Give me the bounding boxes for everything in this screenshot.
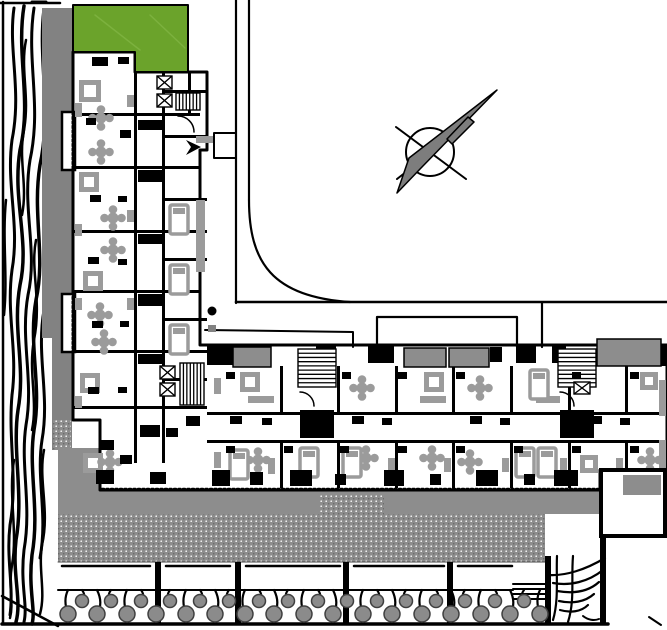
pavilion-structure <box>601 470 665 536</box>
site-plan-svg <box>0 0 667 630</box>
slope-contours-southeast <box>549 556 605 622</box>
site-plan-canvas <box>0 0 667 630</box>
north-arrow <box>396 90 497 193</box>
access-roads <box>205 0 667 347</box>
tree-row <box>60 590 548 622</box>
building-floor-plan <box>62 52 667 490</box>
side-walkway <box>42 8 72 450</box>
